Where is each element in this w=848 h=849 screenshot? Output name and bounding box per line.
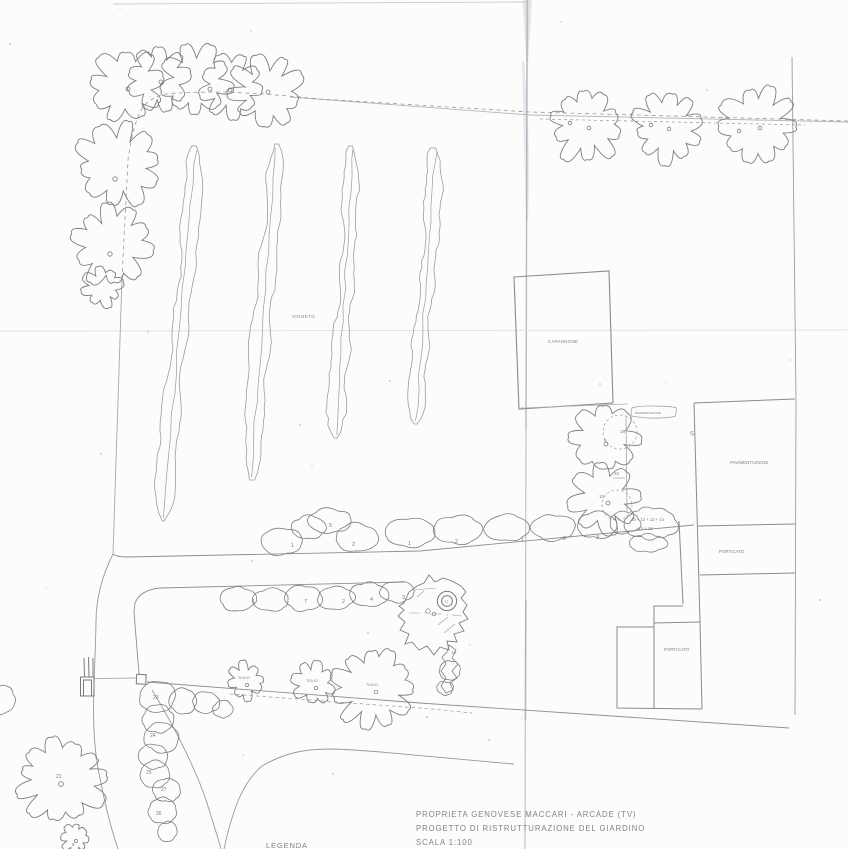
svg-text:1: 1 xyxy=(521,537,524,543)
svg-text:1: 1 xyxy=(291,543,294,549)
svg-text:PROGETTO DI RISTRUTTURAZIONE: PROGETTO DI RISTRUTTURAZIONE DEL GIARDIN… xyxy=(416,824,645,833)
svg-text:SCALA 1:100: SCALA 1:100 xyxy=(416,838,473,847)
svg-text:27: 27 xyxy=(161,787,167,793)
svg-text:17: 17 xyxy=(444,599,449,604)
svg-text:LEGENDA: LEGENDA xyxy=(266,841,308,849)
svg-text:TIGLIO: TIGLIO xyxy=(306,679,318,683)
svg-text:10: 10 xyxy=(599,494,605,499)
svg-text:PORTICATO: PORTICATO xyxy=(719,549,745,554)
svg-text:24: 24 xyxy=(150,733,156,739)
svg-text:1: 1 xyxy=(408,541,411,547)
svg-text:PAVIMENTAZIONE: PAVIMENTAZIONE xyxy=(730,460,768,465)
svg-text:2: 2 xyxy=(563,536,566,542)
svg-text:3: 3 xyxy=(596,535,599,541)
svg-text:2: 2 xyxy=(342,599,345,605)
svg-text:TIGLIO: TIGLIO xyxy=(366,683,378,687)
svg-text:5: 5 xyxy=(329,523,332,529)
svg-text:2: 2 xyxy=(455,539,458,545)
svg-text:PROPRIETA GENOVESE MACCARI: PROPRIETA GENOVESE MACCARI - ARCADE (TV) xyxy=(416,810,636,819)
svg-text:3: 3 xyxy=(402,595,405,601)
svg-text:PAVIMENTAZIONE: PAVIMENTAZIONE xyxy=(635,411,661,415)
svg-text:+15 + 16: +15 + 16 xyxy=(636,526,653,531)
svg-text:VIGNETO: VIGNETO xyxy=(292,314,315,319)
svg-text:1: 1 xyxy=(252,599,255,605)
svg-text:15 + 12 + 13 + 14: 15 + 12 + 13 + 14 xyxy=(631,517,665,522)
svg-text:7: 7 xyxy=(304,599,307,605)
svg-text:2: 2 xyxy=(352,542,355,548)
svg-text:23: 23 xyxy=(153,695,159,701)
svg-text:TIGLIO: TIGLIO xyxy=(238,676,250,680)
svg-text:4: 4 xyxy=(370,597,373,603)
svg-text:CAPANNONE: CAPANNONE xyxy=(548,339,578,344)
svg-text:PORTICATO: PORTICATO xyxy=(664,647,690,652)
svg-text:22: 22 xyxy=(614,471,620,476)
svg-text:25: 25 xyxy=(146,770,152,776)
svg-text:26: 26 xyxy=(156,811,162,817)
svg-text:18: 18 xyxy=(620,429,626,434)
svg-text:21: 21 xyxy=(56,774,62,780)
